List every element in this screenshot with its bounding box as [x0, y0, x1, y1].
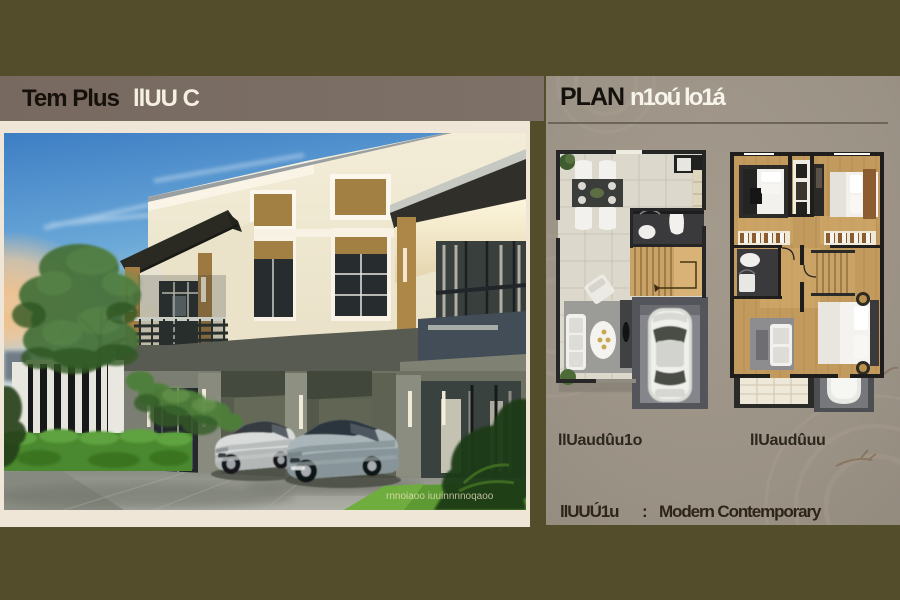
svg-text:rnnoiaoo iuuinnnnoqaoo: rnnoiaoo iuuinnnnoqaoo [386, 491, 494, 502]
